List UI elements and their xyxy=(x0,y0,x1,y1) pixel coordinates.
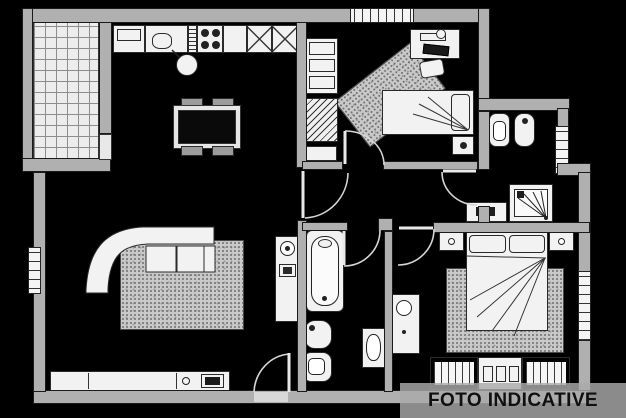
shower-rays xyxy=(518,191,546,218)
bed-fold-1 xyxy=(470,258,545,300)
bed-blanket-edge xyxy=(466,256,546,258)
plant-detail xyxy=(172,50,180,58)
sofa-cushion-1 xyxy=(146,246,176,272)
bed2-fold-3 xyxy=(413,114,468,130)
watermark-band: FOTO INDICATIVE xyxy=(400,383,626,418)
hall-door-arc xyxy=(305,173,348,218)
bed2-fold-2 xyxy=(419,104,468,130)
plan-curves xyxy=(0,0,626,418)
bed-fold-3 xyxy=(492,258,545,331)
bed-fold-4 xyxy=(514,258,545,336)
master-door-arc xyxy=(398,229,434,265)
ensuite-door-arc xyxy=(442,172,477,205)
sofa-armrest xyxy=(204,246,215,272)
shower-drain xyxy=(544,216,548,220)
bathroom-door-arc xyxy=(344,230,380,266)
sofa-cushion-2 xyxy=(177,246,207,272)
entry-door-arc xyxy=(254,354,290,392)
floor-plan: FOTO INDICATIVE xyxy=(0,0,626,418)
watermark-text: FOTO INDICATIVE xyxy=(428,390,598,412)
bed2-fold-1 xyxy=(428,97,468,130)
bedroom2-door-arc xyxy=(345,131,384,165)
bed-fold-2 xyxy=(477,258,545,317)
